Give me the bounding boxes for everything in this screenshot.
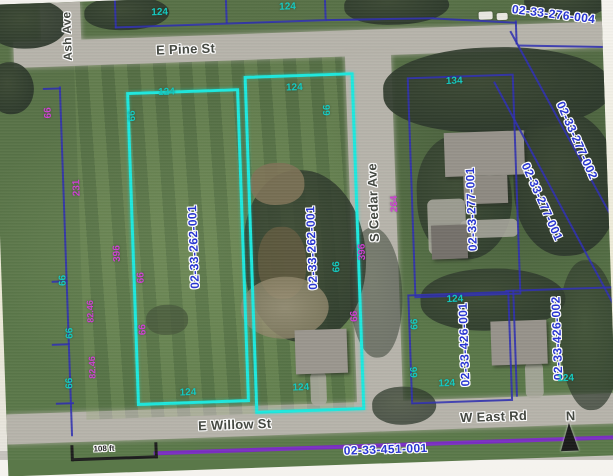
street-label-east-rd: W East Rd: [460, 409, 527, 424]
dim-label: 124: [446, 295, 463, 306]
north-label: N: [566, 409, 576, 422]
parcel-label-277-001[interactable]: 02-33-277-001: [464, 167, 479, 251]
street-label-ash-ave: Ash Ave: [60, 11, 74, 61]
dim-label: 66: [323, 104, 333, 115]
parcel-label-426-001[interactable]: 02-33-426-001: [457, 302, 472, 386]
dim-label: 66: [136, 272, 146, 283]
dim-label: 231: [72, 179, 83, 196]
parcel-line: [225, 0, 228, 24]
dim-label: 124: [279, 2, 296, 13]
vehicle: [497, 13, 508, 20]
street-label-pine-st: E Pine St: [156, 42, 215, 57]
parcel-label-262-001-left[interactable]: 02-33-262-001: [186, 205, 201, 289]
vehicle: [478, 11, 492, 19]
dim-label: 264: [390, 195, 401, 212]
tree-canopy: [344, 0, 450, 26]
dim-label: 82.46: [88, 356, 98, 379]
dim-label: 124: [179, 388, 196, 399]
tree-canopy: [557, 259, 613, 411]
parcel-label-451-001[interactable]: 02-33-451-001: [344, 442, 428, 457]
dim-label: 66: [410, 366, 420, 377]
tree-canopy: [0, 61, 35, 115]
dim-label: 66: [350, 311, 360, 322]
scale-bar-tick: [154, 442, 158, 458]
dim-label: 66: [65, 327, 75, 338]
parcel-line: [324, 0, 327, 19]
dim-label: 124: [151, 8, 168, 19]
north-arrow-icon: [560, 423, 579, 452]
dim-label: 82.46: [86, 300, 96, 323]
dim-label: 124: [292, 383, 309, 394]
dim-label: 66: [410, 318, 420, 329]
dim-label: 66: [65, 378, 75, 389]
dim-label: 66: [44, 107, 54, 118]
dim-label: 134: [446, 76, 463, 87]
dim-label: 124: [286, 83, 303, 94]
dim-label: 66: [128, 110, 138, 121]
dim-label: 124: [158, 87, 175, 98]
street-label-cedar-ave: S Cedar Ave: [365, 163, 381, 242]
street-label-willow-st: E Willow St: [198, 417, 272, 433]
dim-label: 124: [438, 379, 455, 390]
scale-bar: [72, 455, 158, 461]
map-canvas[interactable]: Ash Ave E Pine St S Cedar Ave E Willow S…: [0, 0, 613, 476]
dim-label: 396: [358, 243, 369, 260]
dim-label: 66: [332, 261, 342, 272]
dim-label: 396: [112, 245, 123, 262]
dim-label: 66: [138, 324, 148, 335]
scale-bar-label: 108 ft: [93, 445, 114, 454]
dim-label: 66: [58, 275, 68, 286]
driveway: [525, 362, 544, 399]
parcel-label-426-002[interactable]: 02-33-426-002: [549, 296, 564, 380]
dim-label: 124: [557, 374, 574, 385]
parcel-label-262-001-center[interactable]: 02-33-262-001: [304, 206, 319, 290]
